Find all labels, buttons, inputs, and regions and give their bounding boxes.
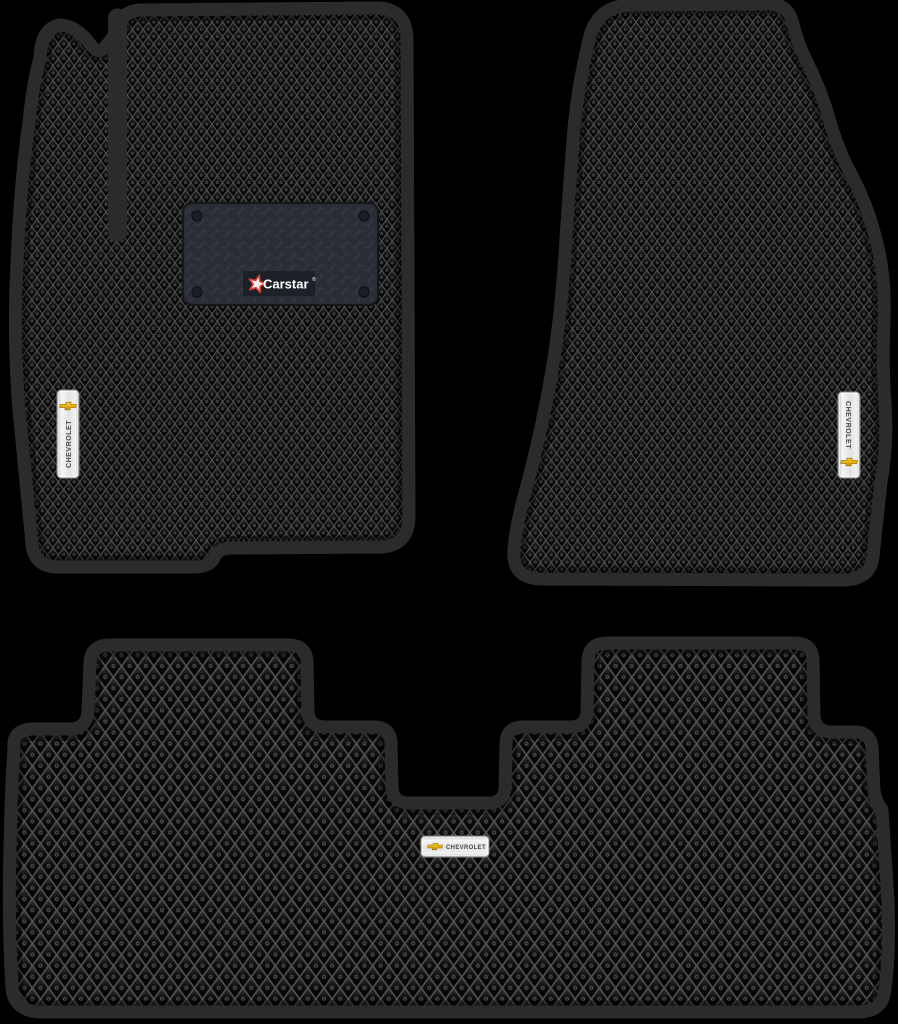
screw (359, 211, 369, 221)
screw (192, 287, 202, 297)
chevrolet-badge: CHEVROLET (57, 390, 79, 478)
mat-surface (9, 643, 888, 1012)
badge-text: CHEVROLET (844, 401, 851, 449)
badge-text: CHEVROLET (446, 844, 486, 851)
screw (192, 211, 202, 221)
registered-mark: ® (312, 276, 316, 283)
carstar-logo: Carstar ® (249, 275, 316, 292)
product-image: Carstar ® CHEVROLET CHEVROLET (0, 0, 898, 1024)
front-left-mat: Carstar ® CHEVROLET (15, 8, 409, 567)
chevrolet-badge: CHEVROLET (421, 836, 489, 857)
carstar-logo-text: Carstar (263, 277, 309, 292)
chevrolet-badge: CHEVROLET (838, 392, 860, 478)
rear-mat: CHEVROLET (9, 643, 888, 1012)
floor-mats-illustration: Carstar ® CHEVROLET CHEVROLET (0, 0, 898, 1024)
front-right-mat: CHEVROLET (514, 4, 886, 580)
badge-text: CHEVROLET (66, 420, 73, 468)
screw (359, 287, 369, 297)
carstar-heel-pad: Carstar ® (183, 203, 378, 305)
